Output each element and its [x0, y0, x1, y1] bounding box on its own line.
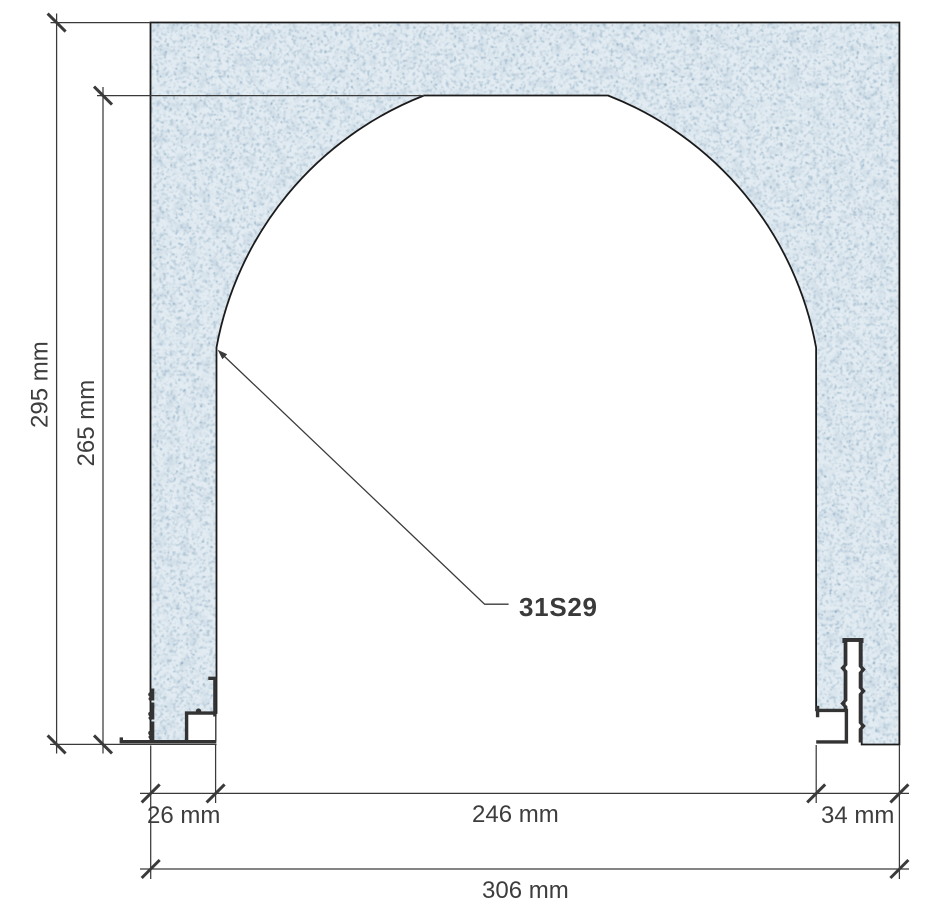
svg-text:31S29: 31S29	[519, 592, 598, 622]
svg-text:34 mm: 34 mm	[821, 802, 894, 829]
svg-text:246 mm: 246 mm	[472, 801, 559, 828]
svg-text:295 mm: 295 mm	[27, 341, 54, 428]
svg-text:26 mm: 26 mm	[147, 802, 220, 829]
svg-text:265 mm: 265 mm	[73, 380, 100, 467]
svg-text:306 mm: 306 mm	[482, 877, 569, 904]
